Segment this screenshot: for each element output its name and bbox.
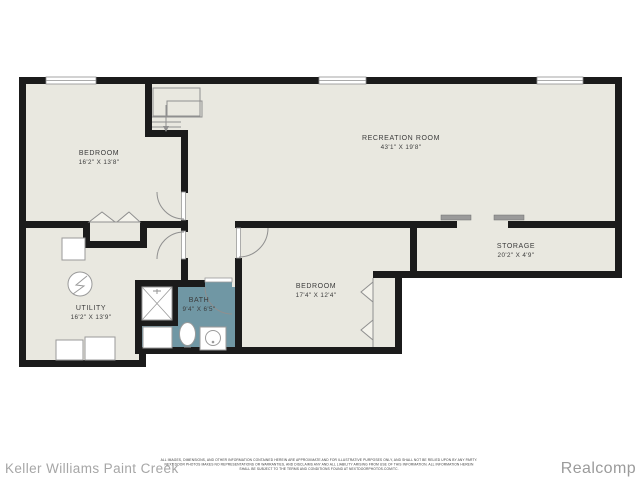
footer: Keller Williams Paint Creek Realcomp ALL… (5, 458, 636, 477)
svg-text:RECREATION ROOM: RECREATION ROOM (362, 135, 440, 142)
window-icon (537, 77, 583, 84)
washer-icon (56, 340, 83, 360)
dryer-icon (85, 337, 115, 360)
window-icon (319, 77, 366, 84)
svg-text:BEDROOM: BEDROOM (296, 283, 336, 290)
shower-icon (142, 287, 172, 320)
svg-text:UTILITY: UTILITY (76, 305, 106, 312)
svg-text:BEDROOM: BEDROOM (79, 150, 119, 157)
svg-text:NEXT DOOR PHOTOS MAKES NO REPR: NEXT DOOR PHOTOS MAKES NO REPRESENTATION… (165, 463, 474, 467)
svg-text:SHALL BE SUBJECT TO THE TERMS: SHALL BE SUBJECT TO THE TERMS AND CONDIT… (239, 467, 398, 471)
window-icon (46, 77, 96, 84)
sink-icon (200, 327, 226, 350)
svg-text:9'4" X 6'5": 9'4" X 6'5" (183, 306, 216, 313)
floor-plan-page: BEDROOM 16'2" X 13'8" RECREATION ROOM 43… (0, 0, 640, 480)
provider-logo: Realcomp (561, 460, 636, 477)
floor-plan: BEDROOM 16'2" X 13'8" RECREATION ROOM 43… (0, 0, 640, 480)
agency-name: Keller Williams Paint Creek (5, 461, 179, 476)
svg-text:17'4" X 12'4": 17'4" X 12'4" (296, 292, 337, 299)
disclaimer-text: ALL IMAGES, DIMENSIONS, AND OTHER INFORM… (161, 458, 478, 471)
svg-text:BATH: BATH (189, 297, 210, 304)
svg-text:ALL IMAGES, DIMENSIONS, AND OT: ALL IMAGES, DIMENSIONS, AND OTHER INFORM… (161, 458, 478, 462)
svg-text:STORAGE: STORAGE (497, 243, 535, 250)
svg-text:43'1" X 19'8": 43'1" X 19'8" (381, 144, 422, 151)
bath-cabinet (143, 327, 172, 348)
svg-text:20'2" X 4'9": 20'2" X 4'9" (498, 252, 535, 259)
furnace-icon (62, 238, 85, 260)
electrical-panel-icon (68, 272, 92, 296)
svg-text:16'2" X 13'9": 16'2" X 13'9" (71, 314, 112, 321)
svg-text:16'2" X 13'8": 16'2" X 13'8" (79, 159, 120, 166)
